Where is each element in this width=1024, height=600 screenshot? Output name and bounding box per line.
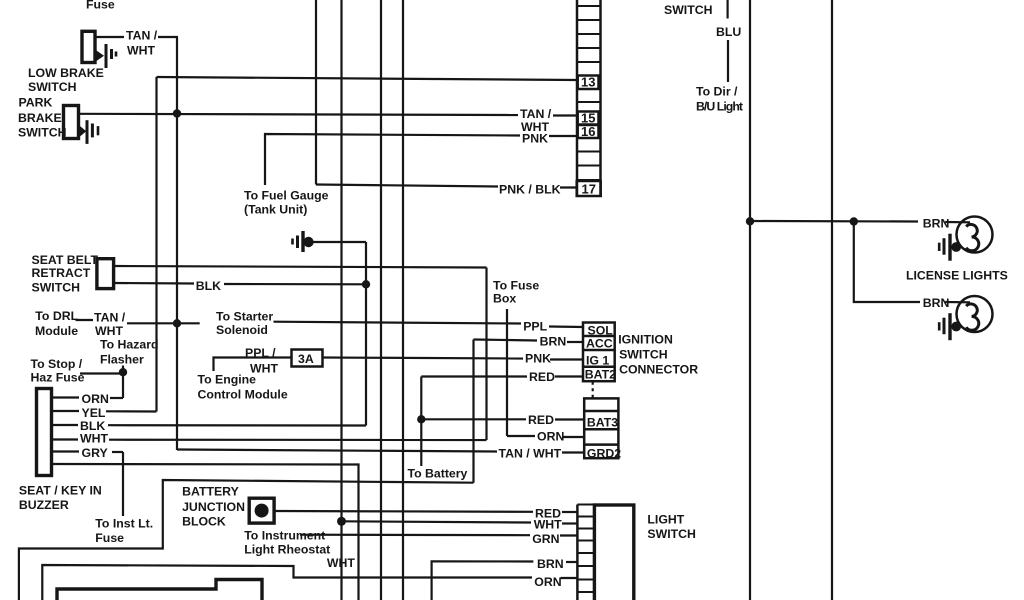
- svg-text:SWITCH: SWITCH: [664, 3, 713, 17]
- svg-text:To Dir /: To Dir /: [696, 85, 738, 99]
- svg-text:TAN / WHT: TAN / WHT: [499, 447, 562, 461]
- svg-text:LOW BRAKE: LOW BRAKE: [28, 66, 104, 80]
- svg-text:3A: 3A: [298, 352, 314, 366]
- svg-text:RED: RED: [529, 370, 555, 384]
- svg-text:BAT2: BAT2: [585, 368, 616, 382]
- svg-text:ORN: ORN: [534, 575, 561, 589]
- svg-text:TAN /: TAN /: [94, 311, 126, 325]
- svg-text:WHT: WHT: [127, 44, 155, 58]
- svg-text:SWITCH: SWITCH: [619, 348, 668, 362]
- svg-text:16: 16: [581, 124, 595, 139]
- svg-text:SWITCH: SWITCH: [18, 126, 67, 140]
- svg-text:Box: Box: [493, 292, 516, 306]
- svg-text:17: 17: [582, 182, 596, 197]
- svg-text:TAN /: TAN /: [126, 29, 158, 43]
- svg-text:SWITCH: SWITCH: [647, 527, 696, 541]
- svg-text:BLK: BLK: [196, 279, 221, 293]
- svg-text:To Stop /: To Stop /: [31, 357, 83, 371]
- svg-text:BUZZER: BUZZER: [19, 498, 69, 512]
- svg-text:To Battery: To Battery: [408, 467, 468, 481]
- svg-text:BAT3: BAT3: [587, 416, 618, 430]
- svg-text:PPL /: PPL /: [245, 346, 276, 360]
- svg-text:To Fuse: To Fuse: [493, 279, 539, 293]
- svg-text:BRN: BRN: [923, 217, 950, 231]
- svg-text:Light Rheostat: Light Rheostat: [244, 543, 330, 557]
- svg-text:To Inst Lt.: To Inst Lt.: [95, 517, 153, 531]
- svg-text:Solenoid: Solenoid: [216, 323, 268, 337]
- svg-text:To Engine: To Engine: [198, 373, 257, 387]
- svg-text:LICENSE LIGHTS: LICENSE LIGHTS: [906, 269, 1008, 283]
- svg-text:Fuse: Fuse: [86, 0, 115, 12]
- svg-text:Module: Module: [35, 324, 78, 338]
- svg-text:ACC: ACC: [586, 337, 613, 351]
- svg-text:To Hazard: To Hazard: [100, 338, 159, 352]
- svg-text:PNK: PNK: [525, 352, 551, 366]
- svg-text:SWITCH: SWITCH: [28, 80, 77, 94]
- svg-text:BLU: BLU: [716, 25, 741, 39]
- svg-text:SWITCH: SWITCH: [32, 281, 81, 295]
- svg-text:PNK / BLK: PNK / BLK: [499, 183, 561, 197]
- svg-text:ORN: ORN: [82, 392, 109, 406]
- svg-text:IGNITION: IGNITION: [618, 333, 673, 347]
- svg-text:PPL: PPL: [523, 320, 547, 334]
- svg-text:CONNECTOR: CONNECTOR: [619, 363, 698, 377]
- svg-text:WHT: WHT: [327, 556, 355, 570]
- svg-text:BRN: BRN: [540, 335, 567, 349]
- svg-text:To Fuel Gauge: To Fuel Gauge: [244, 189, 329, 203]
- svg-text:WHT: WHT: [534, 518, 562, 532]
- svg-text:GRD2: GRD2: [587, 447, 621, 461]
- svg-text:SEAT BELT: SEAT BELT: [32, 253, 99, 267]
- svg-text:BATTERY: BATTERY: [182, 485, 239, 499]
- svg-text:RED: RED: [528, 413, 554, 427]
- svg-text:GRY: GRY: [82, 446, 108, 460]
- svg-text:BRAKE: BRAKE: [18, 111, 62, 125]
- svg-text:WHT: WHT: [95, 324, 123, 338]
- svg-text:YEL: YEL: [82, 406, 106, 420]
- svg-text:PARK: PARK: [19, 96, 53, 110]
- svg-text:BLOCK: BLOCK: [182, 515, 226, 529]
- svg-text:13: 13: [581, 75, 595, 90]
- svg-text:TAN /: TAN /: [520, 107, 552, 121]
- svg-text:BRN: BRN: [537, 557, 564, 571]
- svg-text:WHT: WHT: [80, 432, 108, 446]
- svg-text:B/U Light: B/U Light: [696, 100, 743, 114]
- svg-text:IG 1: IG 1: [586, 354, 609, 368]
- svg-text:Haz Fuse: Haz Fuse: [31, 371, 85, 385]
- svg-text:LIGHT: LIGHT: [647, 513, 684, 527]
- svg-text:PNK: PNK: [522, 132, 548, 146]
- svg-text:To DRL: To DRL: [35, 309, 78, 323]
- svg-text:(Tank Unit): (Tank Unit): [244, 203, 307, 217]
- svg-text:GRN: GRN: [532, 532, 559, 546]
- svg-text:Flasher: Flasher: [100, 353, 144, 367]
- svg-text:SEAT / KEY IN: SEAT / KEY IN: [19, 484, 102, 498]
- svg-text:SOL: SOL: [588, 324, 614, 338]
- svg-text:Fuse: Fuse: [95, 531, 124, 545]
- svg-text:Control Module: Control Module: [198, 388, 288, 402]
- svg-text:ORN: ORN: [537, 430, 564, 444]
- svg-text:To Starter: To Starter: [216, 310, 273, 324]
- svg-text:RETRACT: RETRACT: [32, 266, 91, 280]
- svg-text:JUNCTION: JUNCTION: [182, 500, 245, 514]
